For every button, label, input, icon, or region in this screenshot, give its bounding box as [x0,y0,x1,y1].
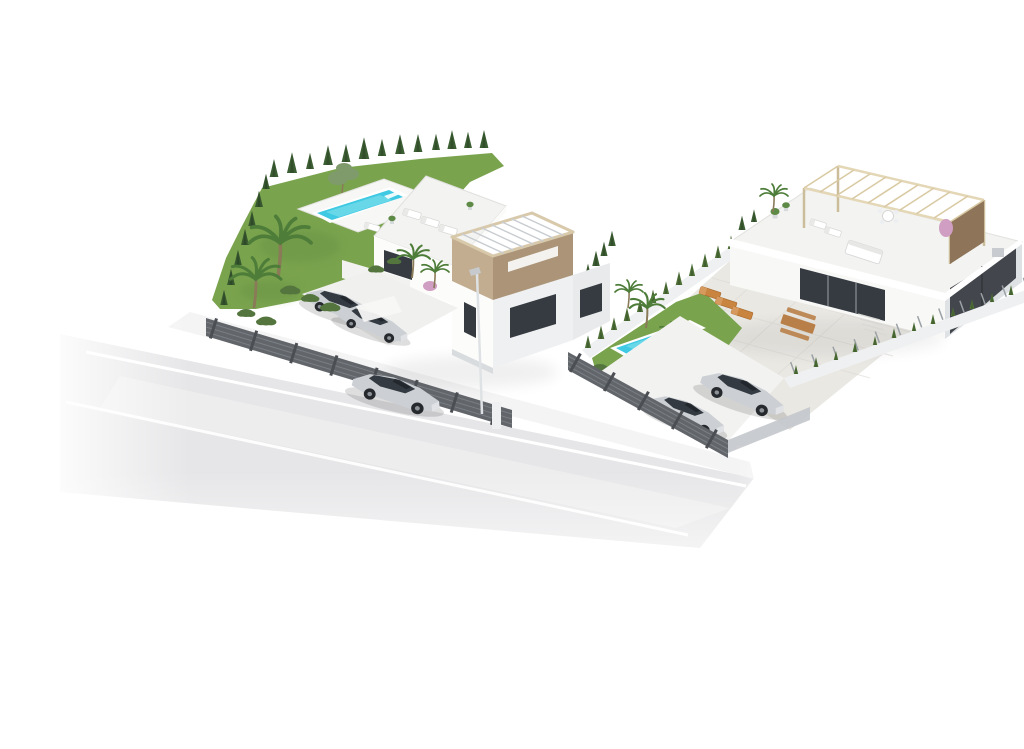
scene-svg [40,16,1024,733]
roof-round-table [883,211,894,222]
architectural-render [40,16,1024,733]
edge-fade-road-end [735,446,810,561]
roof-pink-plant [939,219,953,237]
edge-fade-bottom [40,471,800,611]
gate-pillar [492,402,501,429]
right-villa-group [568,166,1024,458]
roof-ac-unit [992,248,1004,257]
left-door [464,302,476,338]
